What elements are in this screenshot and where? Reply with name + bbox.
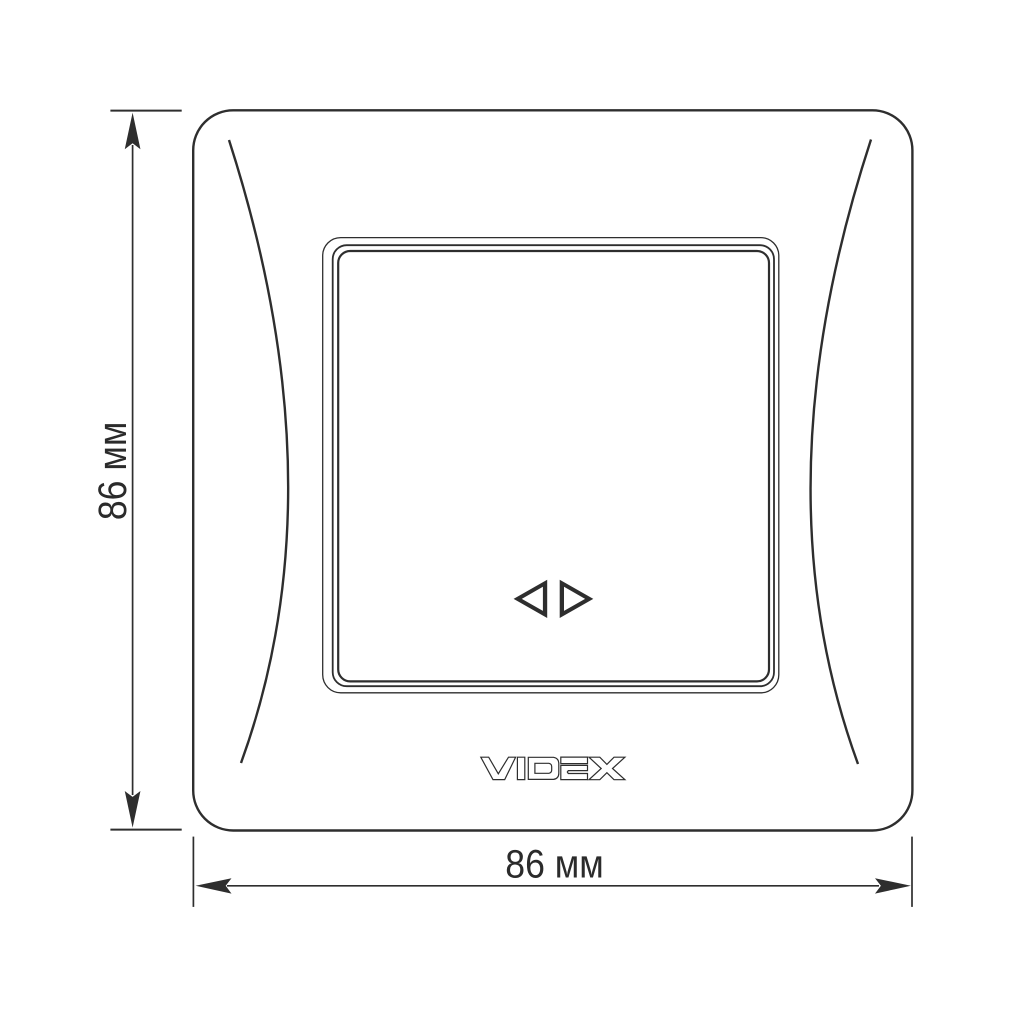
svg-text:86 мм: 86 мм	[91, 422, 135, 520]
svg-text:86 мм: 86 мм	[505, 843, 603, 887]
